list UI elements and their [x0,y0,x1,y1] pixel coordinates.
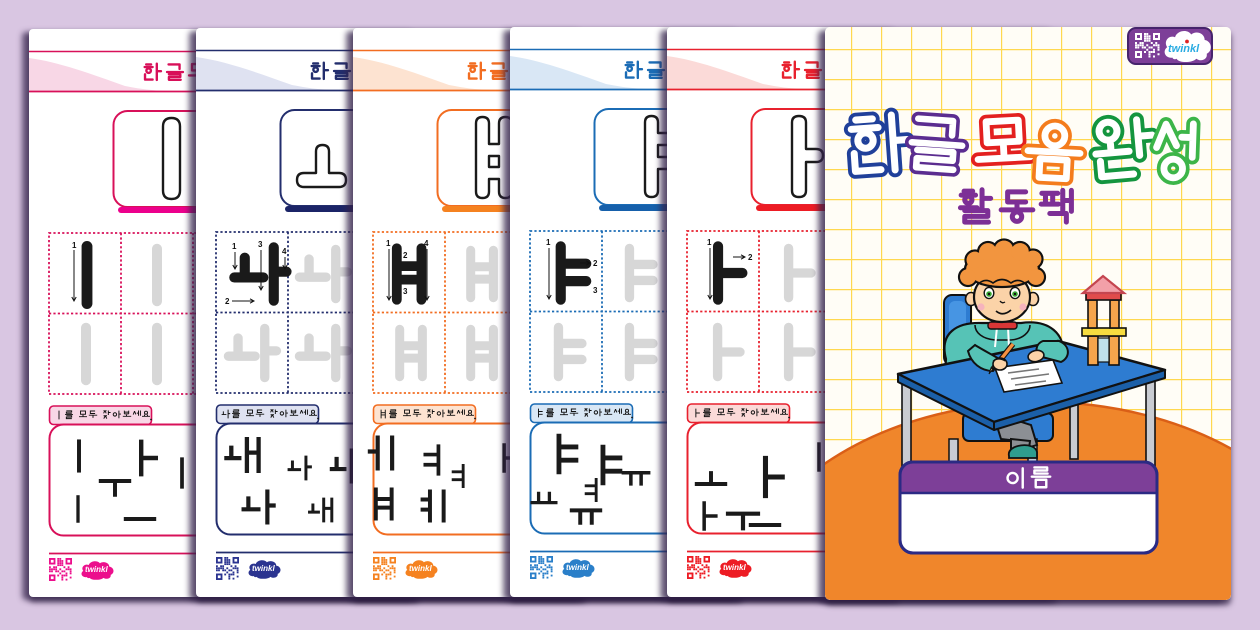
svg-text:2: 2 [593,259,598,268]
svg-text:1: 1 [232,242,237,251]
svg-text:1: 1 [72,241,77,250]
svg-text:4: 4 [424,239,429,248]
svg-text:2: 2 [225,297,230,306]
svg-text:3: 3 [258,240,263,249]
svg-text:twinkl: twinkl [1168,43,1200,55]
svg-text:1: 1 [707,238,712,247]
svg-text:1: 1 [386,239,391,248]
svg-text:2: 2 [403,251,408,260]
svg-text:3: 3 [403,287,408,296]
svg-text:twinkl: twinkl [566,563,589,572]
svg-text:twinkl: twinkl [723,563,746,572]
svg-text:1: 1 [546,238,551,247]
svg-text:2: 2 [748,253,753,262]
svg-text:twinkl: twinkl [252,564,275,573]
svg-text:twinkl: twinkl [409,564,432,573]
svg-text:4: 4 [282,247,287,256]
svg-text:twinkl: twinkl [85,565,108,574]
svg-text:3: 3 [593,286,598,295]
